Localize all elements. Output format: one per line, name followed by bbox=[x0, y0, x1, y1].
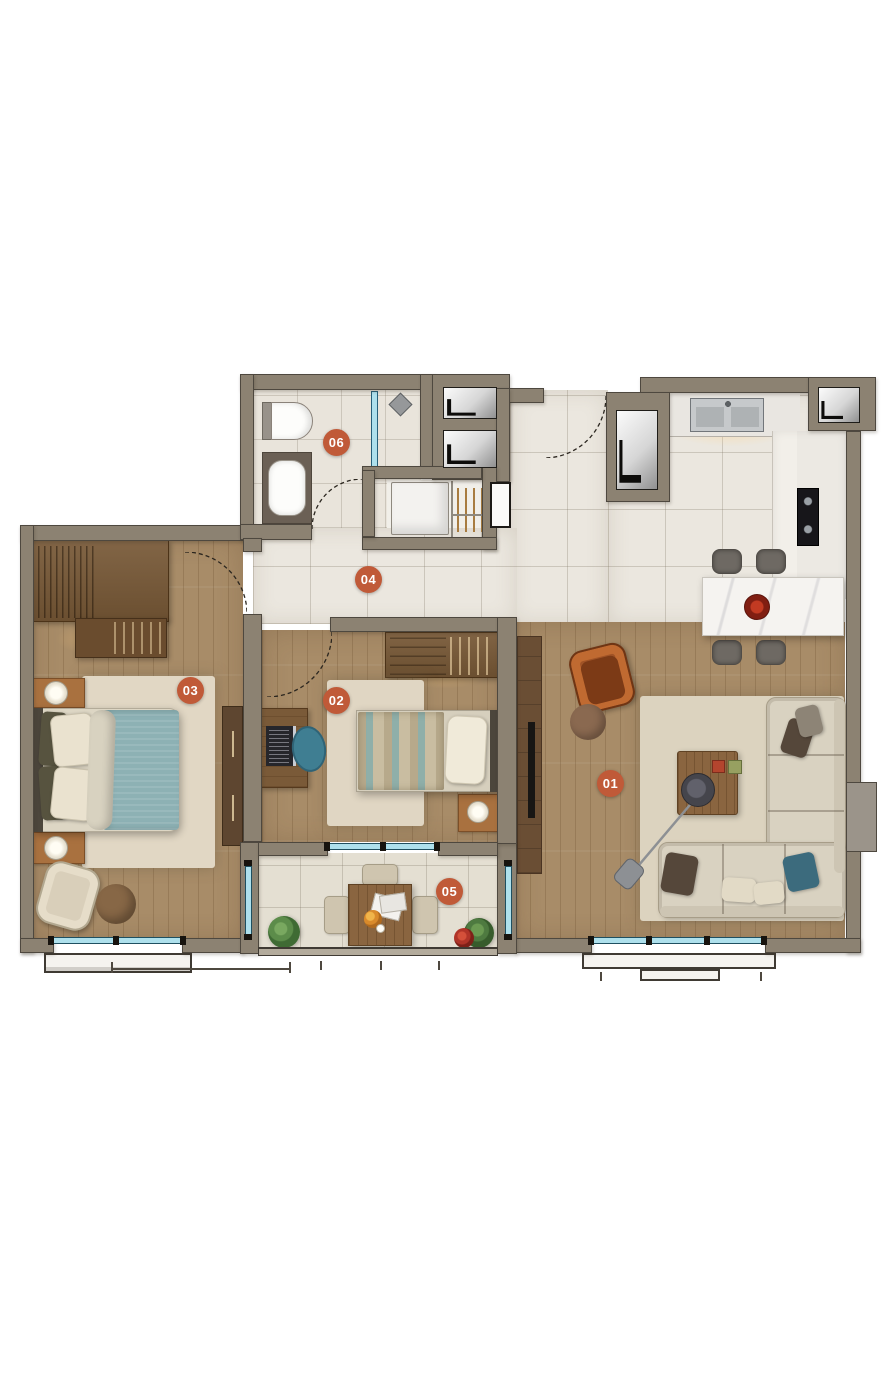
shaft-duct bbox=[443, 430, 497, 468]
floor-pouf bbox=[96, 884, 136, 924]
wall-bed2-bottom-left bbox=[258, 842, 328, 856]
wall-unit-box bbox=[846, 782, 877, 852]
sofa-backrest bbox=[834, 699, 845, 873]
table-lamp bbox=[44, 681, 68, 705]
fruit-bowl bbox=[744, 594, 770, 620]
kitchen-island bbox=[702, 577, 844, 636]
dimension-tick bbox=[600, 972, 602, 981]
balcony-railing bbox=[258, 947, 498, 956]
sofa-backrest bbox=[660, 906, 844, 917]
wall-bed1-right-top bbox=[243, 538, 262, 552]
vanity-sink bbox=[268, 460, 306, 516]
built-in-ovens bbox=[797, 488, 819, 546]
wardrobe bbox=[385, 632, 498, 678]
window-jamb bbox=[180, 936, 186, 945]
window-jamb bbox=[504, 860, 512, 866]
room-label-living-room: 01 bbox=[597, 770, 624, 797]
wall-bathroom-top bbox=[240, 374, 436, 390]
potted-plant bbox=[268, 916, 300, 948]
living-room-window bbox=[592, 937, 765, 944]
wall-hall-bed2 bbox=[330, 617, 498, 632]
wall-kitchen-top bbox=[640, 377, 810, 393]
tall-dresser bbox=[222, 706, 243, 846]
window-jamb bbox=[504, 934, 512, 940]
balcony-chair bbox=[412, 896, 438, 934]
sofa-pillow bbox=[660, 851, 699, 896]
dimension-tick bbox=[289, 962, 291, 973]
table-lamp bbox=[44, 836, 68, 860]
window-jamb bbox=[646, 936, 652, 945]
window-jamb bbox=[761, 936, 767, 945]
dimension-tick bbox=[760, 972, 762, 981]
closet-hanging-rods bbox=[457, 488, 483, 532]
bedroom2-door-arc bbox=[267, 632, 332, 697]
balcony-chair bbox=[324, 896, 350, 934]
wall-bed2-living bbox=[497, 617, 517, 844]
window-jamb bbox=[588, 936, 594, 945]
sofa-pillow bbox=[753, 880, 785, 905]
room-label-balcony: 05 bbox=[436, 878, 463, 905]
wall-bathroom-left bbox=[240, 374, 254, 536]
window-jamb bbox=[380, 842, 386, 851]
window-jamb bbox=[324, 842, 330, 851]
bed-blanket-roll bbox=[86, 710, 116, 831]
wall-bed1-right-main bbox=[243, 614, 262, 842]
window-jamb bbox=[434, 842, 440, 851]
bathroom-door-arc bbox=[312, 479, 362, 529]
dimension-tick bbox=[380, 961, 382, 970]
dimension-tick bbox=[320, 961, 322, 970]
shaft-duct bbox=[443, 387, 497, 419]
shower-glass-panel bbox=[371, 391, 378, 473]
wall-entry-left bbox=[496, 388, 510, 482]
decor-box bbox=[712, 760, 725, 773]
room-label-bedroom-2: 02 bbox=[323, 687, 350, 714]
bedroom1-door-arc bbox=[185, 552, 247, 614]
wall-bottom-bed1-right bbox=[182, 938, 244, 953]
wall-bathroom-door-stub bbox=[362, 470, 375, 537]
shaft-duct bbox=[818, 387, 860, 423]
wall-closet-bottom bbox=[362, 537, 497, 550]
dresser-chest bbox=[75, 618, 167, 658]
room-label-bedroom-1: 03 bbox=[177, 677, 204, 704]
bar-stool bbox=[712, 549, 742, 574]
window-jamb bbox=[113, 936, 119, 945]
wardrobe bbox=[33, 540, 169, 622]
bed-duvet-striped bbox=[358, 712, 444, 790]
wall-exterior-top-left bbox=[20, 525, 244, 541]
magazines bbox=[379, 892, 407, 913]
sofa-seam bbox=[768, 810, 844, 812]
coffee-cup bbox=[376, 924, 385, 933]
floor-plan-page: { "rooms": [ {"label": "01", "name": "li… bbox=[0, 0, 889, 1391]
window-jamb bbox=[48, 936, 54, 945]
washing-machine bbox=[391, 482, 449, 535]
room-label-hall: 04 bbox=[355, 566, 382, 593]
wall-exterior-right bbox=[846, 431, 861, 953]
bar-stool bbox=[756, 640, 786, 665]
window-sill bbox=[44, 953, 192, 973]
entry-shoe-cabinet bbox=[490, 482, 511, 528]
dimension-line bbox=[112, 968, 290, 970]
window-sill-step bbox=[640, 969, 720, 981]
balcony-side-window-right bbox=[505, 866, 512, 938]
decor-plate bbox=[681, 773, 715, 807]
room-label-bathroom: 06 bbox=[323, 429, 350, 456]
table-lamp bbox=[467, 801, 489, 823]
dimension-tick bbox=[438, 961, 440, 970]
bar-stool bbox=[756, 549, 786, 574]
flowering-plant bbox=[454, 928, 474, 948]
entrance-door-arc bbox=[544, 396, 606, 458]
window-jamb bbox=[704, 936, 710, 945]
decor-box bbox=[728, 760, 742, 774]
wall-bottom-living-left bbox=[515, 938, 592, 953]
dimension-tick bbox=[111, 962, 113, 973]
bed-pillow bbox=[444, 715, 488, 785]
sofa-pillow bbox=[721, 877, 757, 903]
side-pouf bbox=[570, 704, 606, 740]
wall-bed2-bottom-right bbox=[438, 842, 498, 856]
shaft-duct bbox=[616, 410, 658, 490]
window-jamb bbox=[244, 934, 252, 940]
kitchen-sink bbox=[690, 398, 764, 432]
tv bbox=[528, 722, 535, 818]
bar-stool bbox=[712, 640, 742, 665]
closet-shelf-line bbox=[453, 514, 483, 516]
balcony-side-window-left bbox=[245, 866, 252, 938]
toilet bbox=[271, 402, 313, 440]
wall-bottom-living-right bbox=[765, 938, 861, 953]
closet-divider bbox=[451, 481, 453, 537]
floor-plan: 01 02 03 04 05 06 bbox=[0, 0, 889, 1391]
wall-exterior-left bbox=[20, 525, 34, 953]
balcony-chair bbox=[362, 864, 398, 886]
window-jamb bbox=[244, 860, 252, 866]
window-sill bbox=[582, 953, 776, 969]
